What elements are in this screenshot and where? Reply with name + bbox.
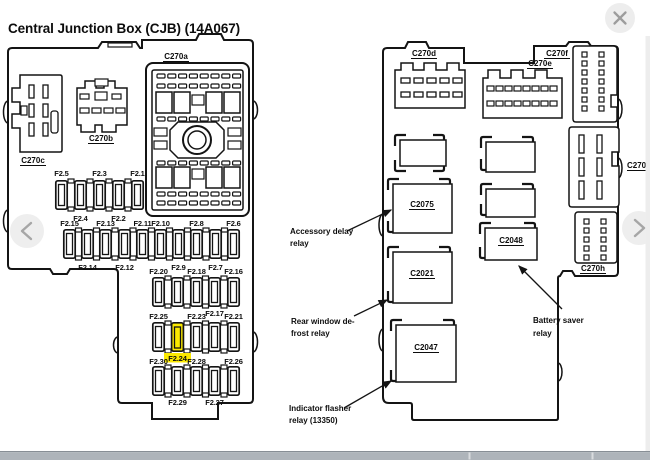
connector-label-c270a: C270a bbox=[164, 52, 188, 61]
fuse-label: F2.17 bbox=[205, 309, 223, 318]
fuse-label: F2.13 bbox=[96, 219, 114, 228]
fuse-slot bbox=[56, 181, 67, 209]
fuse-label: F2.23 bbox=[187, 312, 205, 321]
fuse-label: F2.3 bbox=[92, 169, 106, 178]
connector-label-c270e: C270e bbox=[528, 59, 552, 68]
annotation-indicator-flasher-relay: Indicator flasher relay (13350) bbox=[289, 381, 391, 425]
fuse-label: F2.16 bbox=[224, 267, 242, 276]
fuse-slot bbox=[228, 278, 239, 306]
connector-c270g: C270g bbox=[569, 127, 650, 207]
fuse-slot bbox=[191, 367, 202, 395]
connector-c270a: C270a bbox=[146, 52, 249, 216]
connector-label-c270d: C270d bbox=[412, 49, 436, 58]
relay-c2075: C2075 bbox=[388, 179, 452, 233]
close-button[interactable] bbox=[605, 3, 635, 33]
fuse-slot bbox=[228, 367, 239, 395]
fuse-label: F2.15 bbox=[60, 219, 78, 228]
fuse-highlight-slot bbox=[175, 327, 181, 348]
fuse-label: F2.14 bbox=[78, 263, 97, 272]
fuse-slot bbox=[172, 367, 183, 395]
fuse-label: F2.5 bbox=[54, 169, 68, 178]
fuse-slot bbox=[153, 367, 164, 395]
fuse-label: F2.10 bbox=[151, 219, 169, 228]
relay-label-c2021: C2021 bbox=[410, 269, 434, 278]
relay-c2021: C2021 bbox=[388, 247, 452, 303]
highlighted-fuse-label: F2.24 bbox=[168, 354, 187, 363]
bottom-bar-border bbox=[0, 451, 650, 452]
fuse-slot bbox=[191, 278, 202, 306]
fuse-label: F2.6 bbox=[226, 219, 240, 228]
connector-label-c270b: C270b bbox=[89, 134, 113, 143]
annotation-text: relay bbox=[290, 239, 309, 248]
bottom-bar-divider bbox=[592, 453, 594, 460]
cjb-diagram: Central Junction Box (CJB) (14A067) C270… bbox=[0, 0, 650, 460]
fuse-label: F2.25 bbox=[149, 312, 167, 321]
connector-label-c270h: C270h bbox=[581, 264, 605, 273]
relay-slot-mid-1 bbox=[481, 137, 535, 172]
fuse-label: F2.20 bbox=[149, 267, 167, 276]
fuse-slot bbox=[209, 367, 220, 395]
fuse-slot bbox=[172, 278, 183, 306]
annotation-text: relay bbox=[533, 329, 552, 338]
fuse-slot bbox=[173, 230, 184, 258]
fuse-slot bbox=[137, 230, 148, 258]
fuse-slot bbox=[132, 181, 143, 209]
relay-label-c2048: C2048 bbox=[499, 236, 523, 245]
annotation-text: Accessory delay bbox=[290, 227, 354, 236]
fuse-slot bbox=[153, 323, 164, 351]
fuse-slot bbox=[64, 230, 75, 258]
bottom-bar-fill bbox=[0, 452, 650, 460]
fuse-slot bbox=[191, 323, 202, 351]
fuse-label: F2.12 bbox=[115, 263, 133, 272]
fuse-slot bbox=[153, 278, 164, 306]
relay-slot-mid-2 bbox=[481, 184, 535, 217]
mount-tab-detail bbox=[108, 43, 132, 47]
annotation-accessory-delay-relay: Accessory delay relay bbox=[290, 210, 391, 248]
fuse-slot bbox=[228, 323, 239, 351]
fuse-label: F2.9 bbox=[171, 263, 185, 272]
relay-c2048: C2048 bbox=[480, 223, 537, 260]
fuse-label: F2.8 bbox=[189, 219, 203, 228]
relay-c2047: C2047 bbox=[391, 320, 456, 382]
rear-box: C270d C270e C270f C270g bbox=[379, 42, 650, 420]
annotation-rear-window-defrost-relay: Rear window de- frost relay bbox=[291, 300, 387, 338]
fuse-slot bbox=[209, 278, 220, 306]
fuse-slot bbox=[119, 230, 130, 258]
page-edge bbox=[646, 36, 650, 451]
next-button[interactable] bbox=[622, 211, 650, 245]
fuse-label: F2.1 bbox=[130, 169, 144, 178]
connector-label-c270c: C270c bbox=[21, 156, 45, 165]
fuse-slot bbox=[82, 230, 93, 258]
bottom-bar-divider bbox=[469, 453, 471, 460]
annotation-text: relay (13350) bbox=[289, 416, 338, 425]
fuse-slot bbox=[155, 230, 166, 258]
fuse-slot bbox=[191, 230, 202, 258]
annotation-text: Battery saver bbox=[533, 316, 584, 325]
fuse-slot bbox=[210, 230, 221, 258]
connector-label-c270f: C270f bbox=[546, 49, 568, 58]
fuse-slot bbox=[100, 230, 111, 258]
prev-button[interactable] bbox=[10, 214, 44, 248]
fuse-label: F2.21 bbox=[224, 312, 242, 321]
connector-c270c: C270c bbox=[12, 75, 62, 166]
bottom-bar bbox=[0, 451, 650, 460]
relay-slot-top bbox=[395, 135, 446, 171]
fuse-slot bbox=[113, 181, 124, 209]
fuse-slot bbox=[75, 181, 86, 209]
relay-label-c2047: C2047 bbox=[414, 343, 438, 352]
fuse-label: F2.29 bbox=[168, 398, 186, 407]
fuse-label: F2.7 bbox=[208, 263, 222, 272]
fuse-label: F2.27 bbox=[205, 398, 223, 407]
annotation-text: Rear window de- bbox=[291, 317, 355, 326]
fuse-slot bbox=[228, 230, 239, 258]
fuse-slot bbox=[209, 323, 220, 351]
annotation-text: frost relay bbox=[291, 329, 330, 338]
fuse-diagram-viewer: Central Junction Box (CJB) (14A067) C270… bbox=[0, 0, 650, 460]
annotation-text: Indicator flasher bbox=[289, 404, 351, 413]
relay-label-c2075: C2075 bbox=[410, 200, 434, 209]
fuse-label: F2.11 bbox=[133, 219, 151, 228]
fuse-slot bbox=[94, 181, 105, 209]
fuse-label: F2.18 bbox=[187, 267, 205, 276]
